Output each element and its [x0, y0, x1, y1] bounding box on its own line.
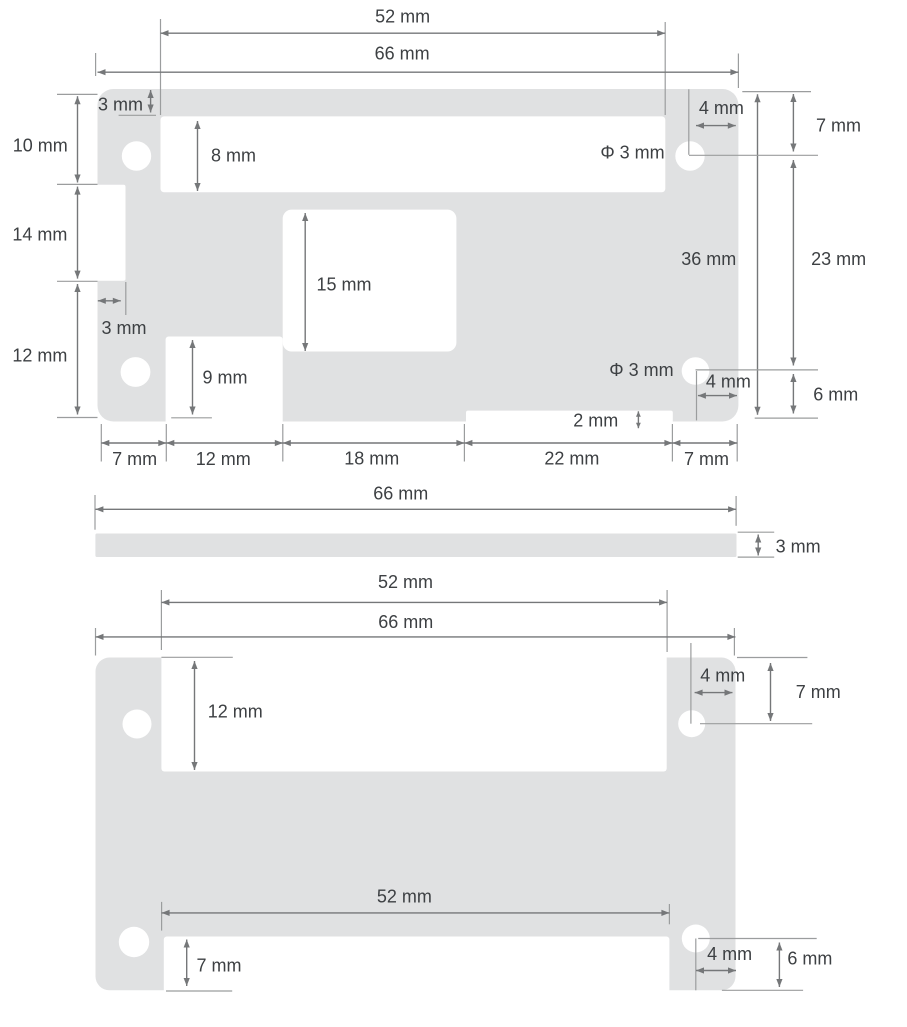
svg-text:66 mm: 66 mm	[373, 484, 428, 504]
svg-text:7 mm: 7 mm	[684, 449, 729, 469]
svg-text:4 mm: 4 mm	[699, 98, 744, 118]
svg-text:52 mm: 52 mm	[377, 886, 432, 906]
svg-text:Φ 3 mm: Φ 3 mm	[600, 143, 664, 163]
svg-text:7 mm: 7 mm	[816, 115, 861, 135]
svg-text:66 mm: 66 mm	[375, 44, 430, 64]
svg-text:12 mm: 12 mm	[12, 345, 67, 365]
svg-text:7 mm: 7 mm	[112, 449, 157, 469]
svg-text:3 mm: 3 mm	[102, 318, 147, 338]
svg-text:36 mm: 36 mm	[681, 249, 736, 269]
svg-text:52 mm: 52 mm	[375, 6, 430, 26]
svg-text:18 mm: 18 mm	[344, 449, 399, 469]
svg-text:12 mm: 12 mm	[208, 702, 263, 722]
svg-text:66 mm: 66 mm	[378, 612, 433, 632]
svg-text:6 mm: 6 mm	[787, 949, 832, 969]
svg-text:10 mm: 10 mm	[13, 136, 68, 156]
svg-text:23 mm: 23 mm	[811, 249, 866, 269]
svg-text:7 mm: 7 mm	[197, 955, 242, 975]
svg-text:6 mm: 6 mm	[813, 384, 858, 404]
svg-text:Φ 3 mm: Φ 3 mm	[609, 360, 673, 380]
svg-text:8 mm: 8 mm	[211, 145, 256, 165]
svg-text:12 mm: 12 mm	[196, 449, 251, 469]
svg-text:4 mm: 4 mm	[707, 944, 752, 964]
svg-text:52 mm: 52 mm	[378, 572, 433, 592]
svg-text:7 mm: 7 mm	[796, 682, 841, 702]
svg-text:4 mm: 4 mm	[700, 666, 745, 686]
svg-text:22 mm: 22 mm	[544, 449, 599, 469]
svg-text:14 mm: 14 mm	[12, 224, 67, 244]
svg-text:3 mm: 3 mm	[98, 94, 143, 114]
svg-text:9 mm: 9 mm	[203, 368, 248, 388]
svg-text:4 mm: 4 mm	[706, 372, 751, 392]
svg-text:3 mm: 3 mm	[776, 537, 821, 557]
svg-text:2 mm: 2 mm	[573, 410, 618, 430]
svg-text:15 mm: 15 mm	[316, 275, 371, 295]
